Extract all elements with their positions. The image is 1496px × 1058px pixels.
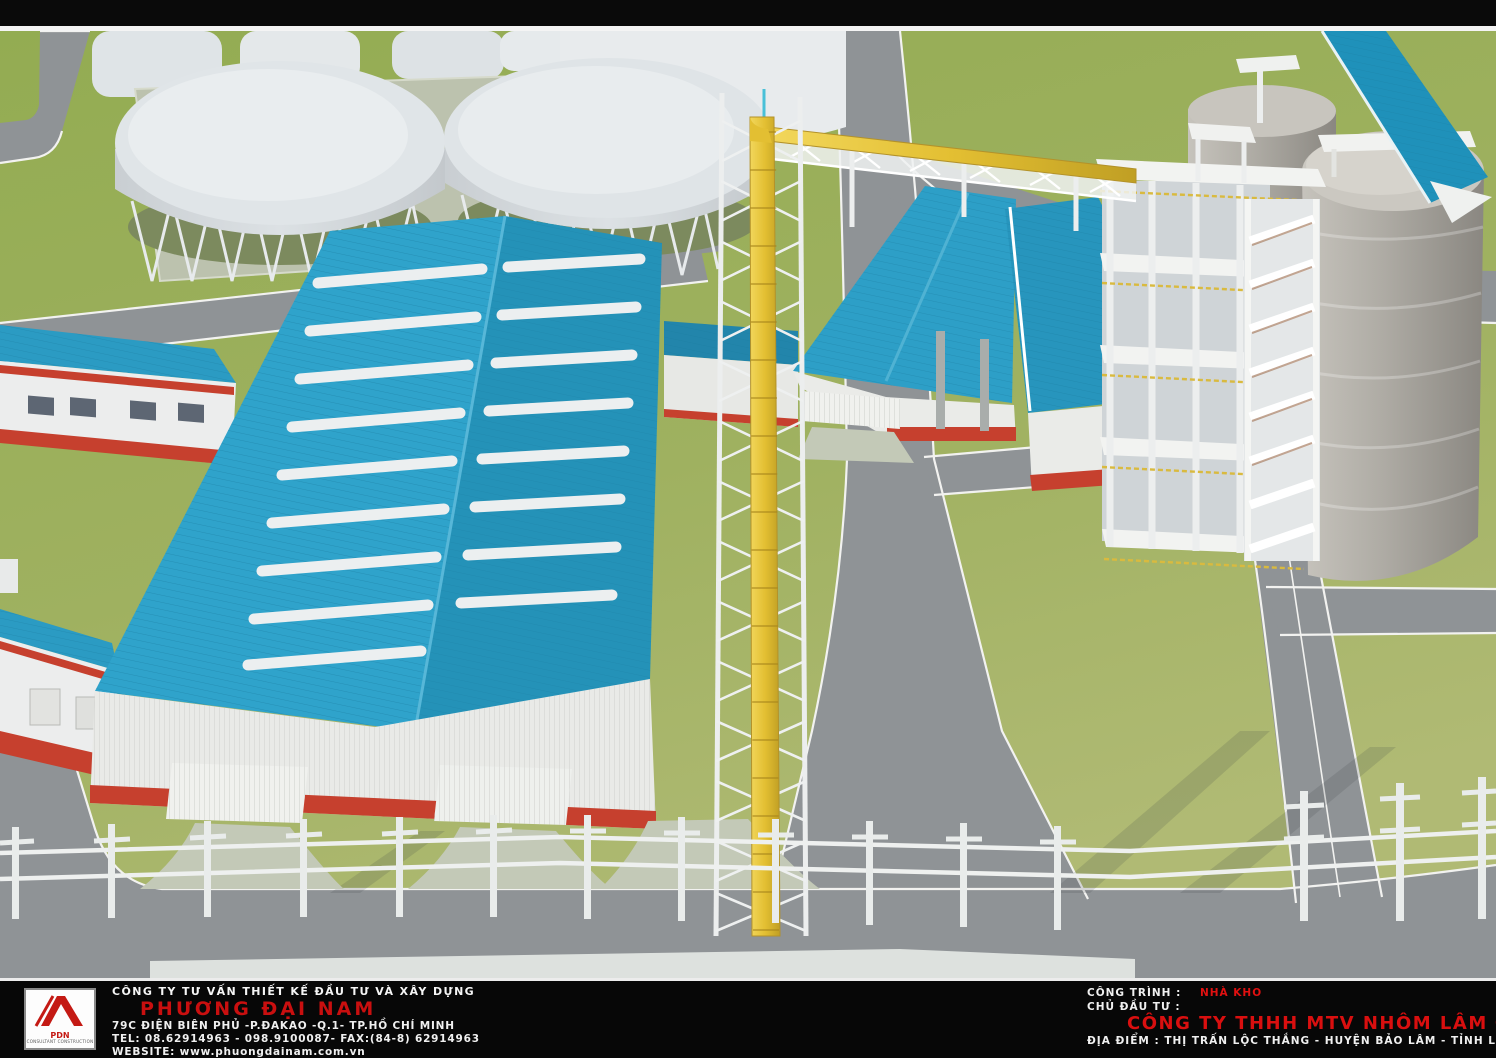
- title-block: PDN CONSULTANT CONSTRUCTION CÔNG TY TƯ V…: [0, 978, 1496, 1058]
- plant-scene: [0, 31, 1496, 978]
- top-black-bar: [0, 0, 1496, 26]
- project-label: CÔNG TRÌNH :: [1087, 987, 1181, 999]
- project-info: CÔNG TRÌNH : NHÀ KHO CHỦ ĐẦU TƯ : CÔNG T…: [1087, 986, 1496, 1048]
- consultant-type: CÔNG TY TƯ VẤN THIẾT KẾ ĐẦU TƯ VÀ XÂY DỰ…: [112, 984, 480, 999]
- consultant-name: PHƯƠNG ĐẠI NAM: [112, 999, 480, 1020]
- consultant-address: 79C ĐIỆN BIÊN PHỦ -P.ĐAKAO -Q.1- TP.HỒ C…: [112, 1020, 480, 1033]
- small-utility-box: [0, 559, 18, 593]
- pdn-logo: PDN CONSULTANT CONSTRUCTION: [24, 988, 96, 1050]
- pdn-logo-mark: [27, 990, 93, 1028]
- consultant-info: CÔNG TY TƯ VẤN THIẾT KẾ ĐẦU TƯ VÀ XÂY DỰ…: [112, 984, 480, 1058]
- project-row: CÔNG TRÌNH : NHÀ KHO: [1087, 986, 1496, 1000]
- project-value: NHÀ KHO: [1186, 987, 1262, 999]
- 3d-rendering-viewport: [0, 31, 1496, 978]
- consultant-website: WEBSITE: www.phuongdainam.com.vn: [112, 1046, 480, 1058]
- stair-tower: [1244, 199, 1320, 561]
- project-location: ĐỊA ĐIỂM : THỊ TRẤN LỘC THẮNG - HUYỆN BẢ…: [1087, 1034, 1496, 1048]
- pdn-logo-caption: CONSULTANT CONSTRUCTION: [26, 1039, 94, 1045]
- investor-label: CHỦ ĐẦU TƯ :: [1087, 1000, 1496, 1014]
- consultant-tel: TEL: 08.62914963 - 098.9100087- FAX:(84-…: [112, 1033, 480, 1046]
- investor-name: CÔNG TY THHH MTV NHÔM LÂM ĐỒNG- VINACOMI…: [1087, 1014, 1496, 1034]
- rendering-sheet: PDN CONSULTANT CONSTRUCTION CÔNG TY TƯ V…: [0, 0, 1496, 1058]
- pdn-logo-abbr: PDN: [26, 1032, 94, 1039]
